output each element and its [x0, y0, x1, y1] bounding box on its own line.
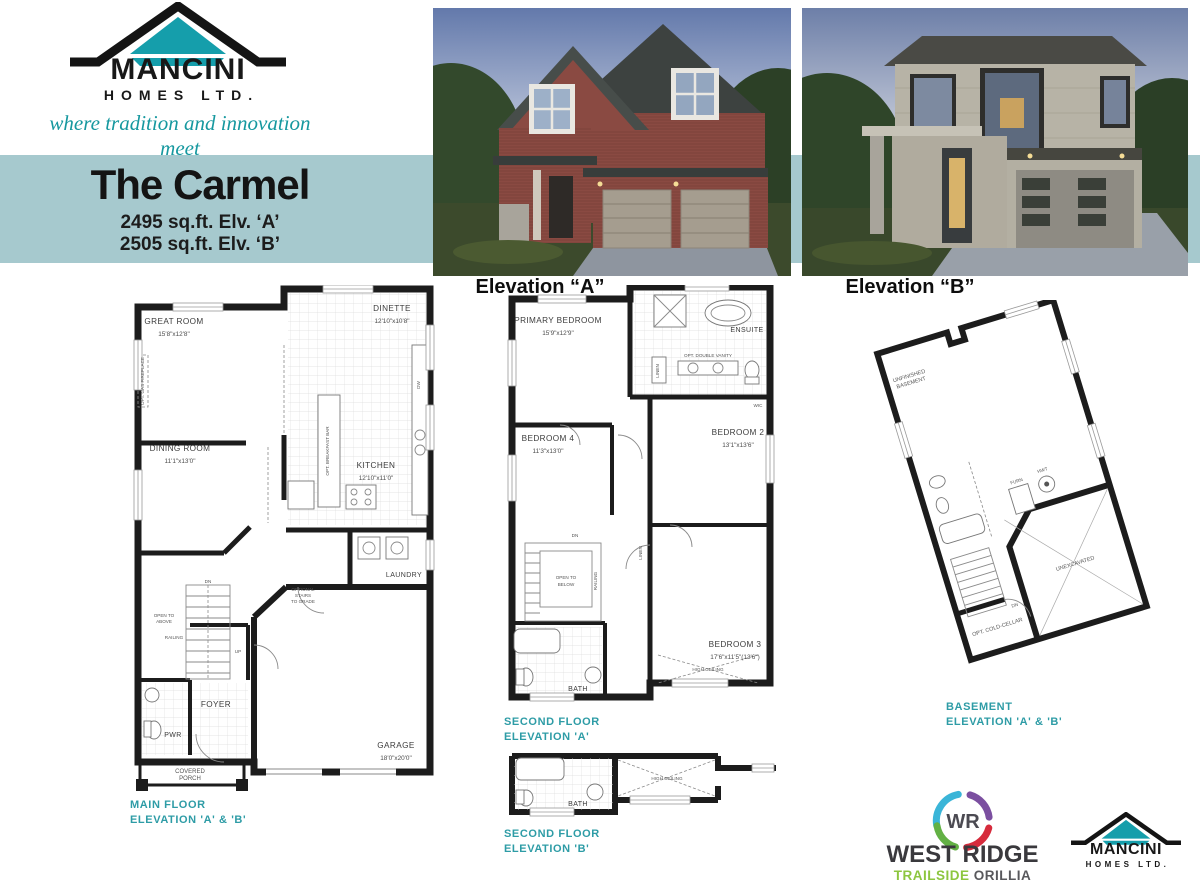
door-glass-glow: [949, 158, 965, 228]
note-railing: RAILING: [165, 635, 184, 640]
porch-canopy: [862, 126, 982, 136]
main-floor-plan: GREAT ROOM 15'8"x12'8" DINETTE 12'10"x10…: [128, 285, 440, 795]
garage-door-1: [603, 190, 671, 248]
room-laundry: LAUNDRY: [386, 572, 422, 579]
note-dw: DW: [416, 381, 421, 389]
second-floor-a-plan: PRIMARY BEDROOM 15'9"x12'9" ENSUITE OPT.…: [500, 285, 775, 715]
second-floor-a-caption: SECOND FLOOR ELEVATION 'A': [504, 715, 600, 745]
second-floor-b-plan: BATH HIGH CEILING: [500, 748, 780, 822]
room-dining-dims: 11'1"x13'0": [164, 458, 195, 465]
room-ensuite: ENSUITE: [730, 327, 763, 334]
second-floor-b-caption-line1: SECOND FLOOR: [504, 827, 600, 842]
plan-title: The Carmel: [30, 161, 370, 209]
note-grade-3: TO GRADE: [291, 599, 315, 604]
room-primary: PRIMARY BEDROOM: [514, 316, 602, 325]
front-shrubs: [453, 240, 563, 264]
basement-caption-line1: BASEMENT: [946, 700, 1062, 715]
main-floor-caption-line1: MAIN FLOOR: [130, 798, 246, 813]
room-dinette-dims: 12'10"x10'8": [374, 318, 409, 325]
note-open-above-1: OPEN TO: [154, 613, 175, 618]
note-open-below-2: BELOW: [558, 582, 575, 587]
room-great-room: GREAT ROOM: [144, 317, 203, 326]
garage-lamp: [674, 182, 679, 187]
main-floor-caption-line2: ELEVATION 'A' & 'B': [130, 813, 246, 828]
room-primary-dims: 15'9"x12'9": [542, 330, 574, 337]
note-open-above-2: ABOVE: [156, 619, 172, 624]
west-ridge-name: WEST RIDGE: [880, 841, 1045, 869]
basement-plan: UNFINISHED BASEMENT FURN HWT UNEXCAVATED…: [858, 300, 1193, 692]
west-ridge-subtitle: TRAILSIDE ORILLIA: [880, 868, 1045, 883]
label-dn-bsmt: DN: [1011, 602, 1019, 609]
room-garage: GARAGE: [377, 741, 415, 750]
basement-caption: BASEMENT ELEVATION 'A' & 'B': [946, 700, 1062, 730]
basement-caption-line2: ELEVATION 'A' & 'B': [946, 715, 1062, 730]
window-upper-right: [1104, 80, 1126, 124]
elevation-a-photo: [433, 8, 791, 276]
roof-teal-triangle: [130, 17, 226, 54]
room-bedroom4-dims: 11'3"x13'0": [532, 448, 563, 455]
west-ridge-trailside: TRAILSIDE: [894, 868, 970, 883]
mancini-footer-suffix: HOMES LTD.: [1070, 860, 1182, 869]
label-furn: FURN: [1010, 477, 1024, 486]
room-porch-2: PORCH: [179, 776, 201, 782]
porch-post: [533, 170, 541, 240]
room-bath-2f: BATH: [568, 686, 588, 693]
note-up: UP: [235, 649, 241, 654]
wr-monogram: WR: [946, 811, 980, 833]
garage-roofline: [583, 168, 768, 177]
room-porch-1: COVERED: [175, 769, 205, 775]
sqft-elevation-b: 2505 sq.ft. Elv. ‘B’: [30, 234, 370, 256]
label-hwt: HWT: [1037, 466, 1049, 474]
room-foyer: FOYER: [201, 700, 231, 709]
note-fireplace: OPT. GAS FIREPLACE: [140, 357, 145, 405]
note-high-ceiling-b: HIGH CEILING: [651, 776, 683, 781]
room-bedroom4: BEDROOM 4: [522, 434, 575, 443]
front-shrubs: [812, 241, 932, 265]
room-garage-dims: 18'0"x20'0": [380, 755, 412, 762]
room-bedroom3: BEDROOM 3: [709, 640, 762, 649]
front-door: [549, 176, 573, 238]
garage-lamp: [1120, 154, 1125, 159]
brand-suffix: HOMES LTD.: [68, 87, 288, 103]
note-dn-2f: DN: [572, 533, 579, 538]
brand-name: MANCINI: [68, 53, 288, 87]
garage-lamp: [1028, 154, 1033, 159]
note-linen-ensuite: LINEN: [655, 364, 660, 378]
elevation-b-photo: [802, 8, 1188, 276]
room-bedroom3-dims: 17'6"x11'5"(13'6"): [710, 654, 759, 661]
note-open-below-1: OPEN TO: [556, 575, 577, 580]
room-bedroom2: BEDROOM 2: [712, 428, 765, 437]
porch-roof: [493, 156, 597, 165]
room-kitchen: KITCHEN: [357, 461, 396, 470]
room-dining: DINING ROOM: [150, 444, 211, 453]
second-floor-b-caption: SECOND FLOOR ELEVATION 'B': [504, 827, 600, 857]
note-linen-hall: LINEN: [638, 546, 643, 560]
room-bedroom2-dims: 13'1"x13'6": [722, 442, 754, 449]
room-dinette: DINETTE: [373, 304, 411, 313]
main-floor-caption: MAIN FLOOR ELEVATION 'A' & 'B': [130, 798, 246, 828]
brand-tagline: where tradition and innovation meet: [30, 111, 330, 161]
second-floor-a-caption-line2: ELEVATION 'A': [504, 730, 600, 745]
note-railing-2f: RAILING: [593, 571, 598, 590]
porch-post: [870, 136, 884, 234]
second-floor-b-caption-line2: ELEVATION 'B': [504, 842, 600, 857]
elevation-b-label: Elevation “B”: [825, 276, 995, 299]
brochure-page: MANCINI HOMES LTD. where tradition and i…: [0, 0, 1200, 889]
window-upper-left: [914, 78, 952, 128]
label-cold-cellar: OPT. COLD-CELLAR: [972, 617, 1024, 638]
hip-roof: [884, 36, 1147, 66]
note-vanity: OPT. DOUBLE VANITY: [684, 353, 732, 358]
sqft-elevation-a: 2495 sq.ft. Elv. ‘A’: [30, 212, 370, 234]
note-high-ceiling: HIGH CEILING: [692, 667, 724, 672]
mancini-footer-name: MANCINI: [1070, 841, 1182, 859]
room-bath-2fb: BATH: [568, 801, 588, 808]
second-floor-a-caption-line1: SECOND FLOOR: [504, 715, 600, 730]
note-dn: DN: [205, 579, 212, 584]
note-grade-1: OPTIONAL: [291, 587, 315, 592]
window-glow: [1000, 98, 1024, 128]
garage-lamp: [598, 182, 603, 187]
note-breakfast-bar: OPT. BREAKFAST BAR: [325, 426, 330, 476]
west-ridge-orillia: ORILLIA: [974, 868, 1032, 883]
note-wic: WIC: [754, 403, 764, 408]
room-kitchen-dims: 12'10"x11'0": [359, 475, 394, 482]
garage-door-2: [681, 190, 749, 248]
note-grade-2: STAIRS: [295, 593, 311, 598]
room-pwr: PWR: [164, 732, 182, 739]
room-great-room-dims: 15'8"x12'8": [158, 331, 190, 338]
